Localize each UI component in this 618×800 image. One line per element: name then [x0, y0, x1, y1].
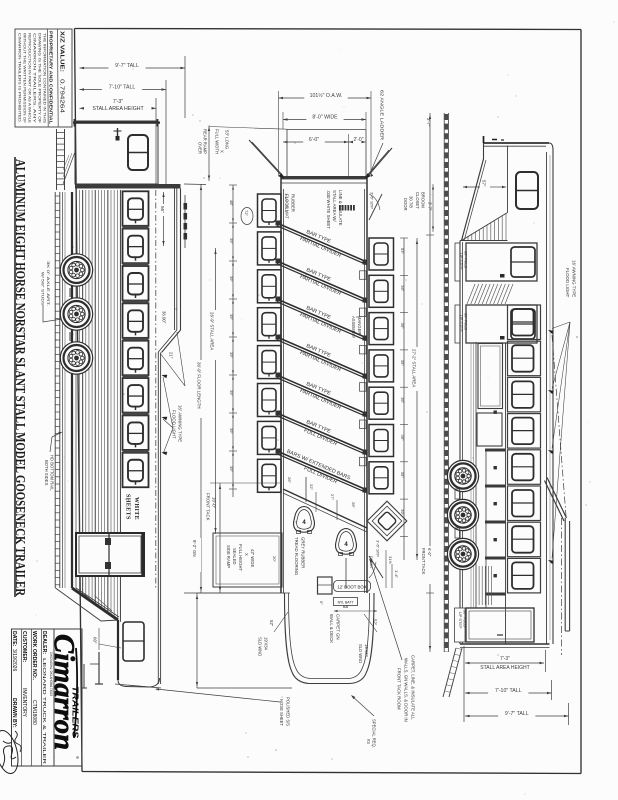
svg-text:1'-4": 1'-4" [394, 570, 399, 579]
svg-text:FULL HEIGHT: FULL HEIGHT [238, 544, 243, 572]
svg-text:6'-0": 6'-0" [427, 548, 432, 557]
svg-text:FRONT TACK ROOM: FRONT TACK ROOM [397, 668, 402, 710]
svg-text:39": 39" [400, 435, 405, 441]
svg-text:X: X [244, 553, 249, 556]
svg-text:SHEETS: SHEETS [125, 494, 131, 520]
svg-text:7'-3": 7'-3" [113, 99, 123, 105]
svg-text:®: ® [75, 756, 80, 759]
svg-text:SLD WND: SLD WND [358, 644, 363, 663]
svg-text:FULL WIDTH: FULL WIDTH [215, 129, 220, 154]
svg-text:52": 52" [269, 620, 274, 627]
svg-text:FLOOD LIGHT: FLOOD LIGHT [171, 410, 176, 439]
svg-text:39": 39" [229, 390, 234, 396]
svg-text:DOOR: DOOR [403, 198, 408, 211]
svg-text:THE INFORMATION CONTAINED IN T: THE INFORMATION CONTAINED IN THIS [42, 33, 46, 124]
svg-text:NOSE SHEET: NOSE SHEET [279, 699, 284, 726]
svg-text:26": 26" [287, 477, 292, 483]
svg-text:INVENTORY: INVENTORY [21, 688, 27, 718]
svg-text:FRONT TACK: FRONT TACK [421, 548, 426, 574]
svg-text:19'X34: 19'X34 [364, 644, 369, 658]
svg-text:DRAWN BY:: DRAWN BY: [11, 698, 17, 728]
svg-text:MANGER: MANGER [357, 316, 362, 334]
svg-text:CIMARRON TRAILERS IS PROHIBITE: CIMARRON TRAILERS IS PROHIBITED. [17, 33, 21, 123]
svg-text:WORK ORDER NO:.: WORK ORDER NO:. [31, 631, 37, 681]
svg-text:22": 22" [309, 484, 314, 490]
svg-text:20": 20" [272, 556, 277, 562]
svg-text:39": 39" [229, 276, 234, 282]
svg-text:42" WIDE: 42" WIDE [250, 549, 255, 567]
svg-text:7'-10" TALL: 7'-10" TALL [109, 84, 136, 90]
svg-text:7'-10" TALL: 7'-10" TALL [495, 688, 522, 694]
svg-text:CIMARRON TRAILERS. ANY: CIMARRON TRAILERS. ANY [32, 33, 36, 124]
svg-text:26'-9" STALL AREA: 26'-9" STALL AREA [209, 312, 214, 350]
svg-text:ASSEMBLY: ASSEMBLY [351, 316, 356, 338]
svg-text:FRONT TACK: FRONT TACK [206, 493, 211, 521]
svg-text:39": 39" [400, 285, 405, 291]
svg-text:.030 WHITE SHEET: .030 WHITE SHEET [326, 190, 331, 229]
svg-text:HD BOTTOM RAIL: HD BOTTOM RAIL [49, 455, 54, 491]
svg-text:OVER: OVER [198, 142, 203, 154]
svg-text:3/19/2026: 3/19/2026 [11, 649, 17, 671]
svg-text:53": 53" [400, 248, 405, 254]
svg-text:CARPET, LINE, & INSULATE ALL: CARPET, LINE, & INSULATE ALL [411, 655, 416, 720]
svg-text:DRAWING IS THE SOLE PROPERTY O: DRAWING IS THE SOLE PROPERTY OF [37, 33, 41, 124]
svg-text:27": 27" [330, 494, 335, 500]
svg-text:8'-0" WIDE: 8'-0" WIDE [312, 114, 338, 120]
svg-text:WHITE: WHITE [133, 497, 139, 520]
svg-text:16' AWNING TYPE: 16' AWNING TYPE [572, 260, 577, 297]
svg-text:48": 48" [229, 200, 234, 206]
svg-text:39": 39" [229, 428, 234, 434]
svg-text:26": 26" [351, 502, 356, 508]
svg-text:REPRODUCTION IN PART OR AS A W: REPRODUCTION IN PART OR AS A WHOLE [27, 33, 31, 124]
svg-text:GREY RUBBER: GREY RUBBER [301, 537, 306, 568]
svg-text:WALL & DECK: WALL & DECK [329, 614, 334, 643]
svg-text:39": 39" [229, 352, 234, 358]
svg-text:72": 72" [244, 210, 249, 216]
svg-text:36.00°: 36.00° [162, 311, 167, 324]
svg-text:STALL AREA HEIGHT: STALL AREA HEIGHT [92, 106, 144, 112]
svg-text:STALL AREA W/: STALL AREA W/ [332, 190, 337, 222]
svg-text:30 7/8: 30 7/8 [409, 196, 414, 208]
svg-text:X/Z VALUE:: X/Z VALUE: [59, 31, 65, 72]
svg-text:3'-7": 3'-7" [426, 118, 431, 127]
svg-text:39": 39" [229, 238, 234, 244]
svg-text:39": 39" [229, 466, 234, 472]
svg-text:57": 57" [482, 180, 487, 187]
svg-text:9'-7" TALL: 9'-7" TALL [115, 63, 139, 69]
svg-text:60": 60" [93, 637, 98, 644]
svg-text:UP STEP: UP STEP [458, 612, 463, 629]
svg-text:CLOSET: CLOSET [415, 192, 420, 209]
svg-text:39": 39" [400, 397, 405, 403]
svg-text:POLISHED S/S: POLISHED S/S [286, 697, 291, 726]
svg-text:62 ANGLE LADDER: 62 ANGLE LADDER [380, 90, 385, 140]
svg-text:39": 39" [229, 314, 234, 320]
svg-text:10'-0": 10'-0" [212, 497, 217, 509]
svg-text:608: 608 [343, 605, 349, 609]
svg-text:21°: 21° [169, 352, 174, 359]
svg-text:LEONARD TRUCK & TRAILER: LEONARD TRUCK & TRAILER [41, 658, 47, 765]
svg-text:CARPET GN: CARPET GN [336, 614, 341, 640]
svg-text:39": 39" [400, 509, 405, 515]
svg-text:SLD WND: SLD WND [258, 637, 263, 656]
svg-text:CUSTOMER:: CUSTOMER: [21, 631, 27, 663]
svg-text:12' BOOT BOX: 12' BOOT BOX [337, 584, 366, 589]
svg-text:36'-9" FLOOR LENGTH: 36'-9" FLOOR LENGTH [197, 362, 202, 409]
svg-text:BROOM: BROOM [421, 192, 426, 208]
svg-text:SIDE RAMP: SIDE RAMP [226, 545, 231, 568]
svg-text:DATE:: DATE: [11, 631, 17, 647]
svg-text:101½" O.A.W.: 101½" O.A.W. [310, 92, 343, 99]
svg-text:RUBBER: RUBBER [291, 194, 296, 212]
svg-text:WALLS, GN WALLS, & DOOR IN: WALLS, GN WALLS, & DOOR IN [404, 658, 409, 722]
svg-text:19'X34: 19'X34 [264, 637, 269, 651]
svg-text:PROPRIETARY AND CONFIDENTIAL: PROPRIETARY AND CONFIDENTIAL [48, 31, 54, 124]
svg-text:FLOOD LIGHT: FLOOD LIGHT [565, 268, 570, 298]
svg-text:WITHOUT THE WRITTEN PERMISSION: WITHOUT THE WRITTEN PERMISSION OF [22, 33, 26, 124]
svg-text:W/ 5/8" STUDS: W/ 5/8" STUDS [41, 272, 46, 305]
svg-text:7'-3": 7'-3" [500, 656, 510, 662]
svg-text:52": 52" [373, 619, 378, 626]
svg-text:CTM18080: CTM18080 [31, 700, 37, 725]
svg-text:39": 39" [400, 323, 405, 329]
svg-text:53" LONG: 53" LONG [225, 130, 230, 149]
svg-text:16" AWNING TYPE: 16" AWNING TYPE [178, 405, 183, 442]
svg-text:TREAD FLOORING: TREAD FLOORING [294, 537, 299, 576]
svg-text:0.794264: 0.794264 [59, 79, 65, 114]
svg-text:56": 56" [160, 206, 165, 213]
svg-text:39": 39" [400, 360, 405, 366]
svg-text:39": 39" [400, 472, 405, 478]
svg-text:31½: 31½ [388, 556, 393, 564]
svg-text:8'-2" GN: 8'-2" GN [192, 540, 197, 557]
svg-text:DEALER:: DEALER: [41, 631, 47, 654]
svg-text:6'-0": 6'-0" [309, 137, 319, 143]
svg-text:27'-2" STALL AREA: 27'-2" STALL AREA [412, 349, 417, 387]
svg-text:SEALED: SEALED [232, 548, 237, 565]
svg-text:#3: #3 [366, 739, 371, 744]
svg-text:1-3/4" SILL: 1-3/4" SILL [284, 193, 288, 212]
svg-text:9'-7" TALL: 9'-7" TALL [505, 711, 529, 717]
svg-text:SPECIAL REQ.: SPECIAL REQ. [372, 719, 377, 748]
svg-text:3'-6" STP: 3'-6" STP [376, 540, 381, 557]
svg-text:BOTH SIDES: BOTH SIDES [44, 460, 49, 486]
svg-text:3K 0" AXLE ART.: 3K 0" AXLE ART. [46, 261, 51, 306]
svg-text:STALL AREA HEIGHT: STALL AREA HEIGHT [480, 665, 529, 671]
